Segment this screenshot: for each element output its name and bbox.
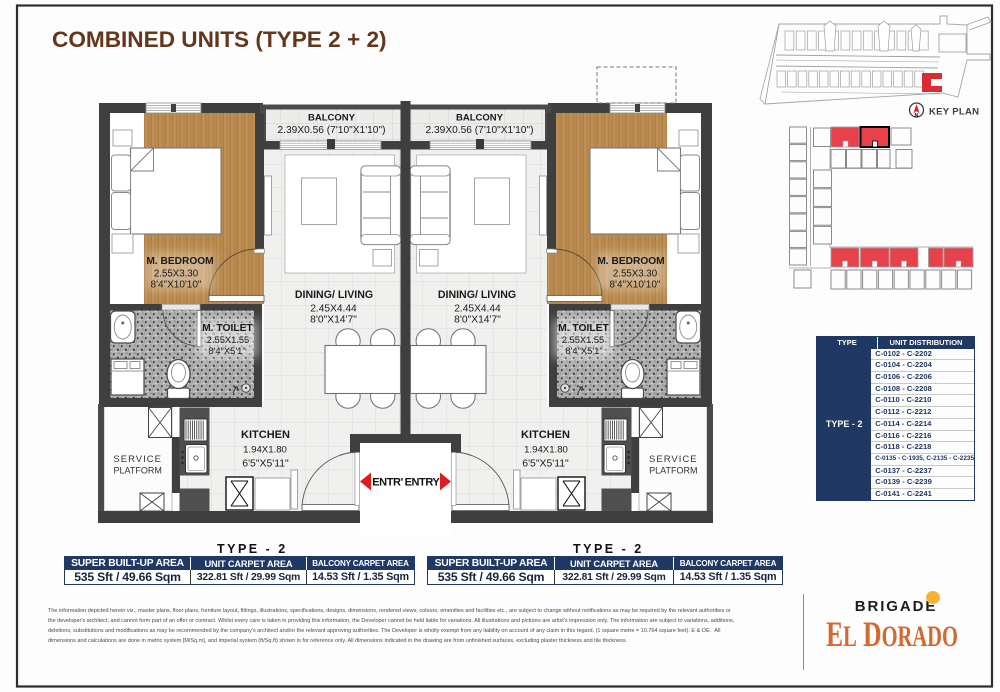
svg-text:PLATFORM: PLATFORM (649, 466, 697, 476)
svg-text:ENTRY: ENTRY (405, 477, 441, 489)
svg-text:KITCHEN: KITCHEN (241, 429, 290, 441)
svg-text:2.45X4.44: 2.45X4.44 (310, 304, 357, 315)
svg-text:8'4"X5'1": 8'4"X5'1" (208, 345, 245, 356)
svg-text:8'4"X5'1": 8'4"X5'1" (565, 345, 602, 356)
svg-text:M. BEDROOM: M. BEDROOM (597, 256, 664, 267)
svg-text:PLATFORM: PLATFORM (114, 466, 162, 476)
svg-text:BALCONY: BALCONY (308, 113, 356, 124)
svg-text:2.55X3.30: 2.55X3.30 (154, 269, 199, 280)
svg-text:KEY PLAN: KEY PLAN (929, 107, 979, 118)
svg-text:ENTR': ENTR' (372, 477, 403, 489)
svg-text:M. BEDROOM: M. BEDROOM (146, 256, 213, 267)
svg-text:8'4"X10'10": 8'4"X10'10" (151, 280, 202, 291)
svg-text:8'0"X14'7": 8'0"X14'7" (310, 315, 357, 326)
svg-text:2.55X1.55: 2.55X1.55 (207, 335, 249, 345)
svg-text:BALCONY: BALCONY (456, 113, 504, 124)
svg-text:DINING/ LIVING: DINING/ LIVING (438, 289, 516, 301)
svg-text:DINING/ LIVING: DINING/ LIVING (295, 289, 373, 301)
svg-text:8'0"X14'7": 8'0"X14'7" (454, 315, 501, 326)
svg-text:6'5"X5'11": 6'5"X5'11" (242, 459, 289, 470)
svg-text:2.55X3.30: 2.55X3.30 (613, 269, 658, 280)
svg-text:2.39X0.56 (7'10"X1'10"): 2.39X0.56 (7'10"X1'10") (278, 125, 386, 136)
svg-text:2.45X4.44: 2.45X4.44 (454, 304, 501, 315)
svg-text:8'4"X10'10": 8'4"X10'10" (610, 280, 661, 291)
svg-text:1.94X1.80: 1.94X1.80 (524, 445, 568, 456)
svg-text:SERVICE: SERVICE (649, 454, 698, 465)
svg-text:N: N (915, 113, 919, 119)
svg-text:SERVICE: SERVICE (113, 454, 162, 465)
svg-text:2.39X0.56 (7'10"X1'10"): 2.39X0.56 (7'10"X1'10") (426, 125, 534, 136)
svg-text:2.55X1.55: 2.55X1.55 (562, 335, 604, 345)
svg-text:M. TOILET: M. TOILET (202, 323, 253, 334)
svg-text:1.94X1.80: 1.94X1.80 (243, 445, 287, 456)
svg-text:6'5"X5'11": 6'5"X5'11" (522, 459, 569, 470)
svg-text:M. TOILET: M. TOILET (558, 323, 609, 334)
svg-text:KITCHEN: KITCHEN (521, 429, 570, 441)
